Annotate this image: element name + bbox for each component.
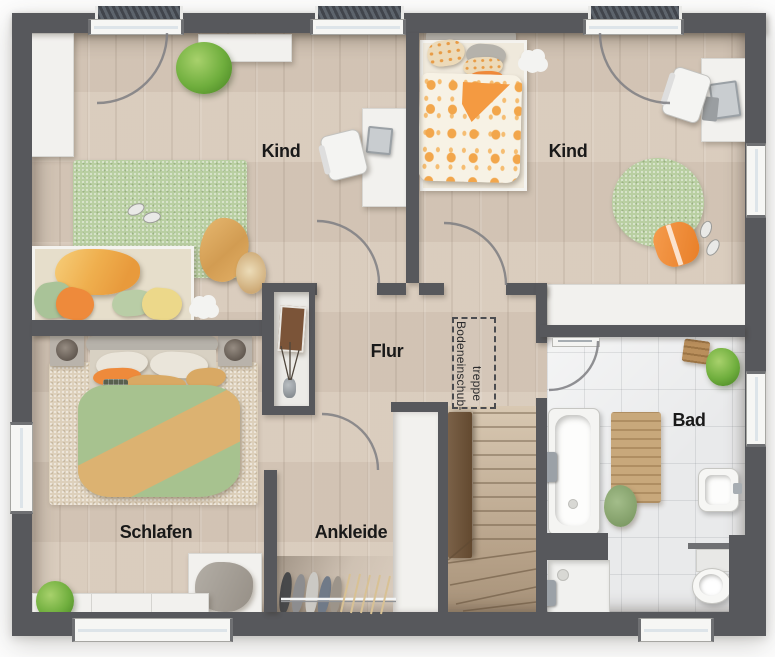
niche-vase [283, 378, 296, 398]
window-shutter [95, 6, 183, 20]
sink-faucet [733, 483, 742, 494]
speaker-lamp [224, 339, 246, 361]
sideboard-kind-right [547, 284, 746, 327]
tub-drain [568, 499, 578, 509]
room-label-schlafen: Schlafen [116, 522, 196, 543]
window-top-3 [583, 19, 684, 35]
window-shutter [315, 6, 404, 20]
shower-drain [557, 569, 569, 581]
nightstand-right [218, 336, 252, 366]
plant-kind-left [176, 42, 232, 94]
laptop [366, 126, 394, 155]
room-label-flur: Flur [357, 341, 417, 362]
niche-mirror [277, 305, 306, 353]
cloud-side-table [192, 296, 207, 311]
room-label-kind-left: Kind [250, 141, 312, 162]
wall-schlafen-north [32, 320, 262, 336]
room-label-ankleide: Ankleide [311, 522, 391, 543]
attic-hatch-label-line2: treppe [470, 366, 484, 401]
wall-wardrobe-stairs [438, 402, 448, 612]
wall-between-kind-rooms [406, 33, 419, 283]
shower-tray [548, 560, 610, 614]
duvet-schlafen [78, 385, 240, 497]
attic-hatch-label-line1: Bodeneinschub- [454, 321, 468, 411]
wall-kind-right-south-a [419, 283, 444, 295]
wall-kind-left-south-b [377, 283, 406, 295]
window-right-kind [746, 143, 766, 218]
room-label-bad: Bad [659, 410, 719, 431]
window-right-bad [746, 371, 766, 447]
wall-schlafen-east [264, 470, 277, 612]
room-label-kind-right: Kind [537, 141, 599, 162]
plant-bad [706, 348, 740, 386]
window-top-1 [88, 19, 184, 35]
duvet-band-tan [78, 385, 240, 497]
towel-green [604, 485, 637, 527]
wardrobe-kind-left [30, 33, 74, 157]
wall-bad-jog [729, 535, 749, 612]
speaker-lamp [56, 339, 78, 361]
cloud-side-table [521, 50, 536, 65]
stair-balustrade [448, 412, 472, 558]
floor-plan: Kind Kind Flur Schlafen Ankleide Bad Bod… [0, 0, 775, 657]
toilet-bowl [692, 568, 732, 604]
window-shutter [588, 6, 682, 20]
bad-door-leaf [552, 337, 600, 347]
half-wall-shower [547, 533, 608, 560]
window-bottom-schlafen [72, 618, 233, 642]
wardrobe-ankleide [393, 412, 438, 612]
wall-bad-north [540, 325, 745, 337]
desk-kind-left [362, 108, 408, 207]
wall-stairs-bad-lower [536, 398, 547, 612]
nightstand-left [50, 336, 84, 366]
window-top-2 [310, 19, 406, 35]
window-bottom-bad [638, 618, 714, 642]
wall-left [12, 13, 32, 636]
window-left-schlafen [10, 422, 33, 514]
